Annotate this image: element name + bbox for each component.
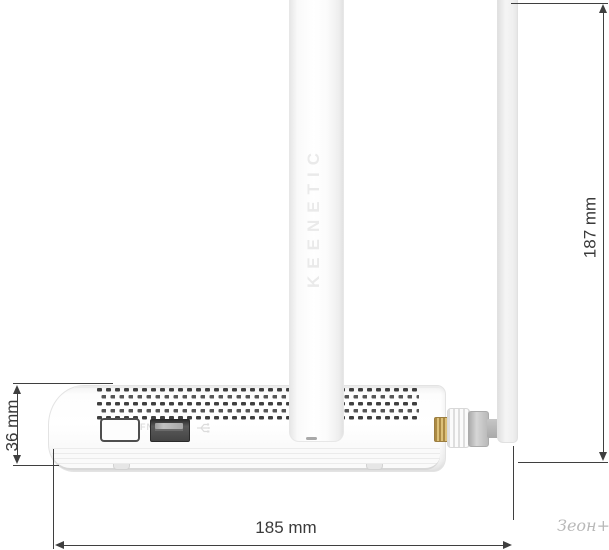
antenna-height-dimension-label: 187 mm (581, 192, 598, 264)
product-dimension-illustration: FN KEENETIC 36 mm 185 mm 187 mm (0, 0, 609, 550)
extension-line-width-left (53, 449, 54, 549)
height-dimension-label: 36 mm (3, 391, 20, 461)
dimension-line-width (57, 545, 510, 546)
dimension-line-antenna-height (603, 7, 604, 457)
brand-embossed-text: KEENETIC (304, 122, 324, 312)
antenna-right (497, 0, 518, 443)
usb-port-tongue (155, 423, 183, 431)
extension-line-width-right (513, 446, 514, 520)
rubber-foot-left (113, 464, 130, 470)
usb-icon (196, 421, 212, 435)
arrowhead-left-icon (55, 541, 64, 549)
antenna-hinge-notch (306, 437, 317, 440)
arrowhead-down-icon (599, 452, 607, 461)
arrowhead-right-icon (503, 541, 512, 549)
watermark: Зеон+ (556, 516, 609, 538)
width-dimension-label: 185 mm (236, 518, 336, 536)
vent-grille (97, 388, 419, 421)
usb-port (150, 419, 190, 442)
extension-line-antenna-bottom (518, 462, 608, 463)
extension-line-antenna-top (511, 3, 608, 4)
antenna-hinge-gray (468, 411, 489, 447)
rubber-foot-right (366, 464, 383, 470)
extension-line-height-top (13, 383, 113, 384)
arrowhead-up-icon (599, 4, 607, 13)
fn-button (100, 418, 140, 442)
antenna-connector-ribbed (447, 408, 470, 448)
